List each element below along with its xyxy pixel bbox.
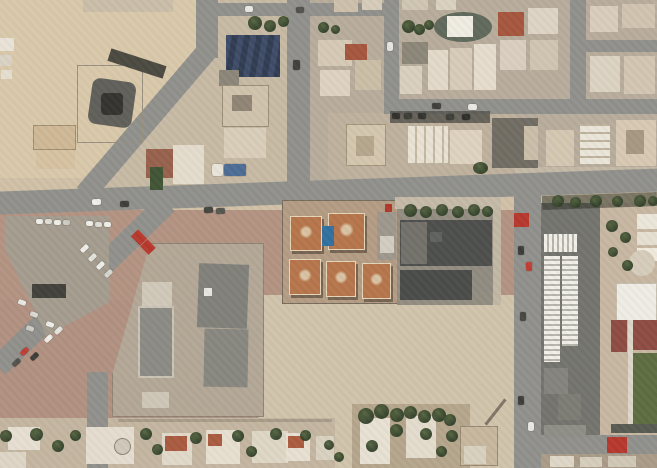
texture-overlay bbox=[0, 0, 657, 468]
satellite-map-view[interactable] bbox=[0, 0, 657, 468]
